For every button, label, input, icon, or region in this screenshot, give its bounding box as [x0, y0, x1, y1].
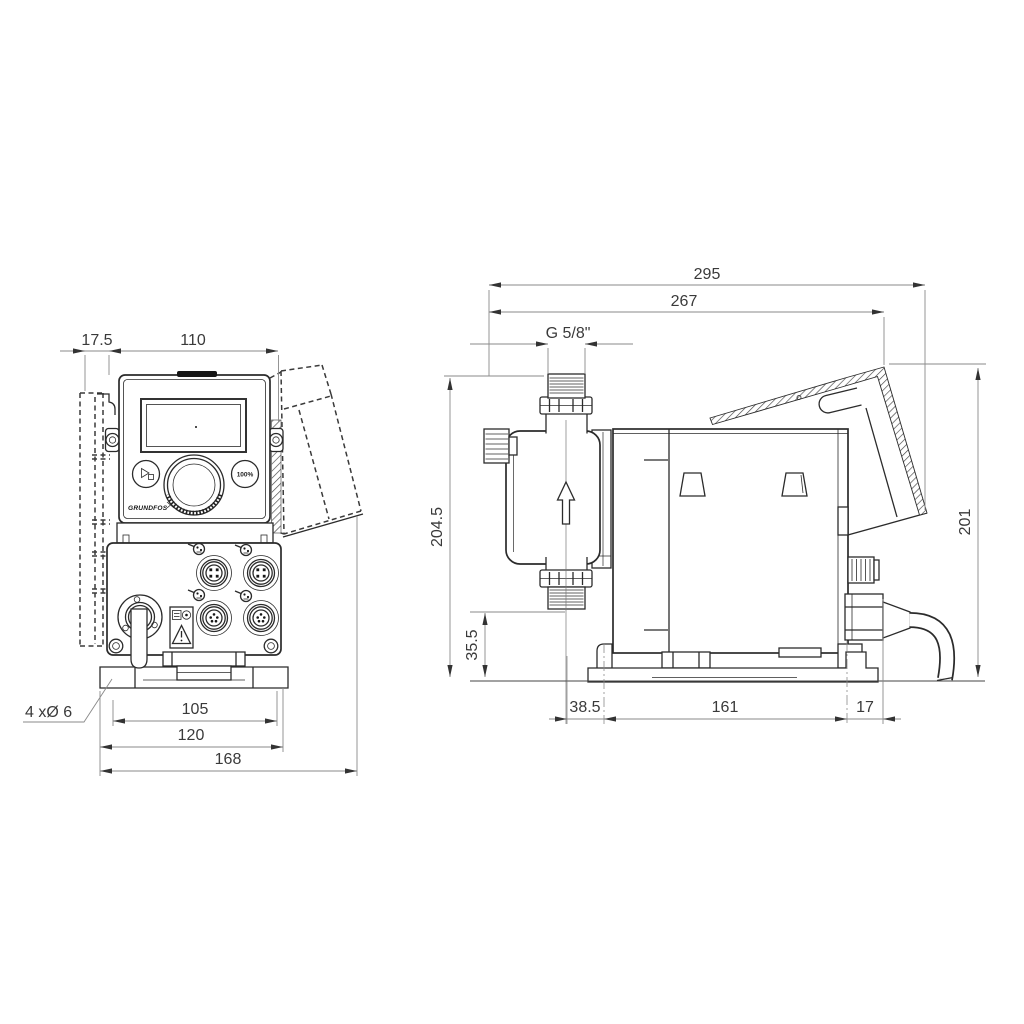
dosing-pump-dimension-drawing: 100% GRUNDFOS — [0, 0, 1024, 1024]
dim-201-label: 201 — [957, 509, 974, 536]
flip-cover-dashed — [270, 365, 361, 534]
dim-204-5-label: 204.5 — [429, 507, 446, 547]
pump-body — [613, 429, 848, 653]
cable-flange — [118, 595, 162, 668]
mounting-holes-label: 4 xØ 6 — [25, 704, 72, 721]
vent-slot — [680, 473, 705, 496]
dim-110-label: 110 — [180, 332, 206, 349]
hinge-tab-right — [270, 429, 284, 452]
technical-drawing-page: 100% GRUNDFOS — [0, 0, 1024, 1024]
dim-295-label: 295 — [694, 266, 721, 283]
corner-screw — [264, 639, 278, 653]
bracket-hook — [97, 394, 115, 415]
threaded-connection-bottom — [548, 587, 585, 609]
display — [141, 399, 246, 452]
full-speed-button-label: 100% — [237, 472, 254, 479]
dim-105-label: 105 — [182, 701, 209, 718]
hinge-tab-left — [106, 429, 120, 452]
dim-35-5-label: 35.5 — [464, 629, 481, 660]
panel-skirt — [117, 523, 273, 543]
dim-17-5-label: 17.5 — [81, 332, 112, 349]
dim-267-label: 267 — [671, 293, 698, 310]
dim-17-label: 17 — [856, 699, 874, 716]
top-tab — [177, 371, 217, 377]
warning-label — [170, 607, 193, 648]
power-cable — [131, 609, 147, 668]
thread-size-label: G 5/8" — [546, 325, 591, 342]
corner-screw — [109, 639, 123, 653]
front-view: 100% GRUNDFOS — [80, 365, 363, 688]
grundfos-logo: GRUNDFOS — [128, 505, 168, 512]
dim-168-label: 168 — [215, 751, 242, 768]
dim-161-label: 161 — [712, 699, 739, 716]
control-panel: 100% GRUNDFOS — [119, 371, 270, 523]
screw-icon — [106, 434, 119, 447]
dim-38-5-label: 38.5 — [569, 699, 600, 716]
cover-bracket-edge — [283, 514, 363, 537]
side-view — [470, 367, 985, 724]
screw-icon — [270, 434, 283, 447]
threaded-connection-top — [548, 374, 585, 398]
dim-120-label: 120 — [178, 727, 205, 744]
